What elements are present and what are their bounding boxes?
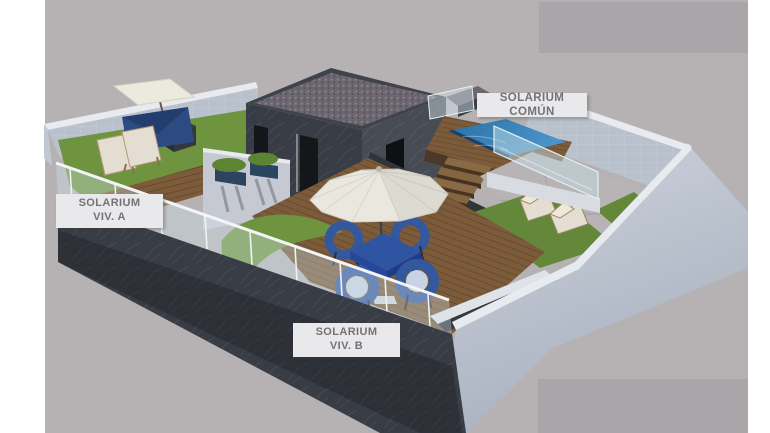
label-text: SOLARIUM COMÚN xyxy=(477,91,587,120)
label-line2: VIV. B xyxy=(330,340,363,354)
backdrop-accent-top-right xyxy=(539,2,748,53)
backdrop-accent-bottom-right xyxy=(538,379,748,433)
label-line2: VIV. A xyxy=(93,211,126,225)
label-solarium-viv-a: SOLARIUM VIV. A xyxy=(56,194,163,228)
architectural-render: SOLARIUM COMÚN SOLARIUM VIV. A SOLARIUM … xyxy=(0,0,770,433)
label-solarium-comun: SOLARIUM COMÚN xyxy=(477,93,587,117)
planter-plants-2 xyxy=(248,153,278,166)
umbrella-finial xyxy=(376,166,382,172)
label-line1: SOLARIUM xyxy=(79,197,141,211)
label-solarium-viv-b: SOLARIUM VIV. B xyxy=(293,323,400,357)
label-line1: SOLARIUM xyxy=(316,326,378,340)
planter-plants-1 xyxy=(212,158,246,172)
